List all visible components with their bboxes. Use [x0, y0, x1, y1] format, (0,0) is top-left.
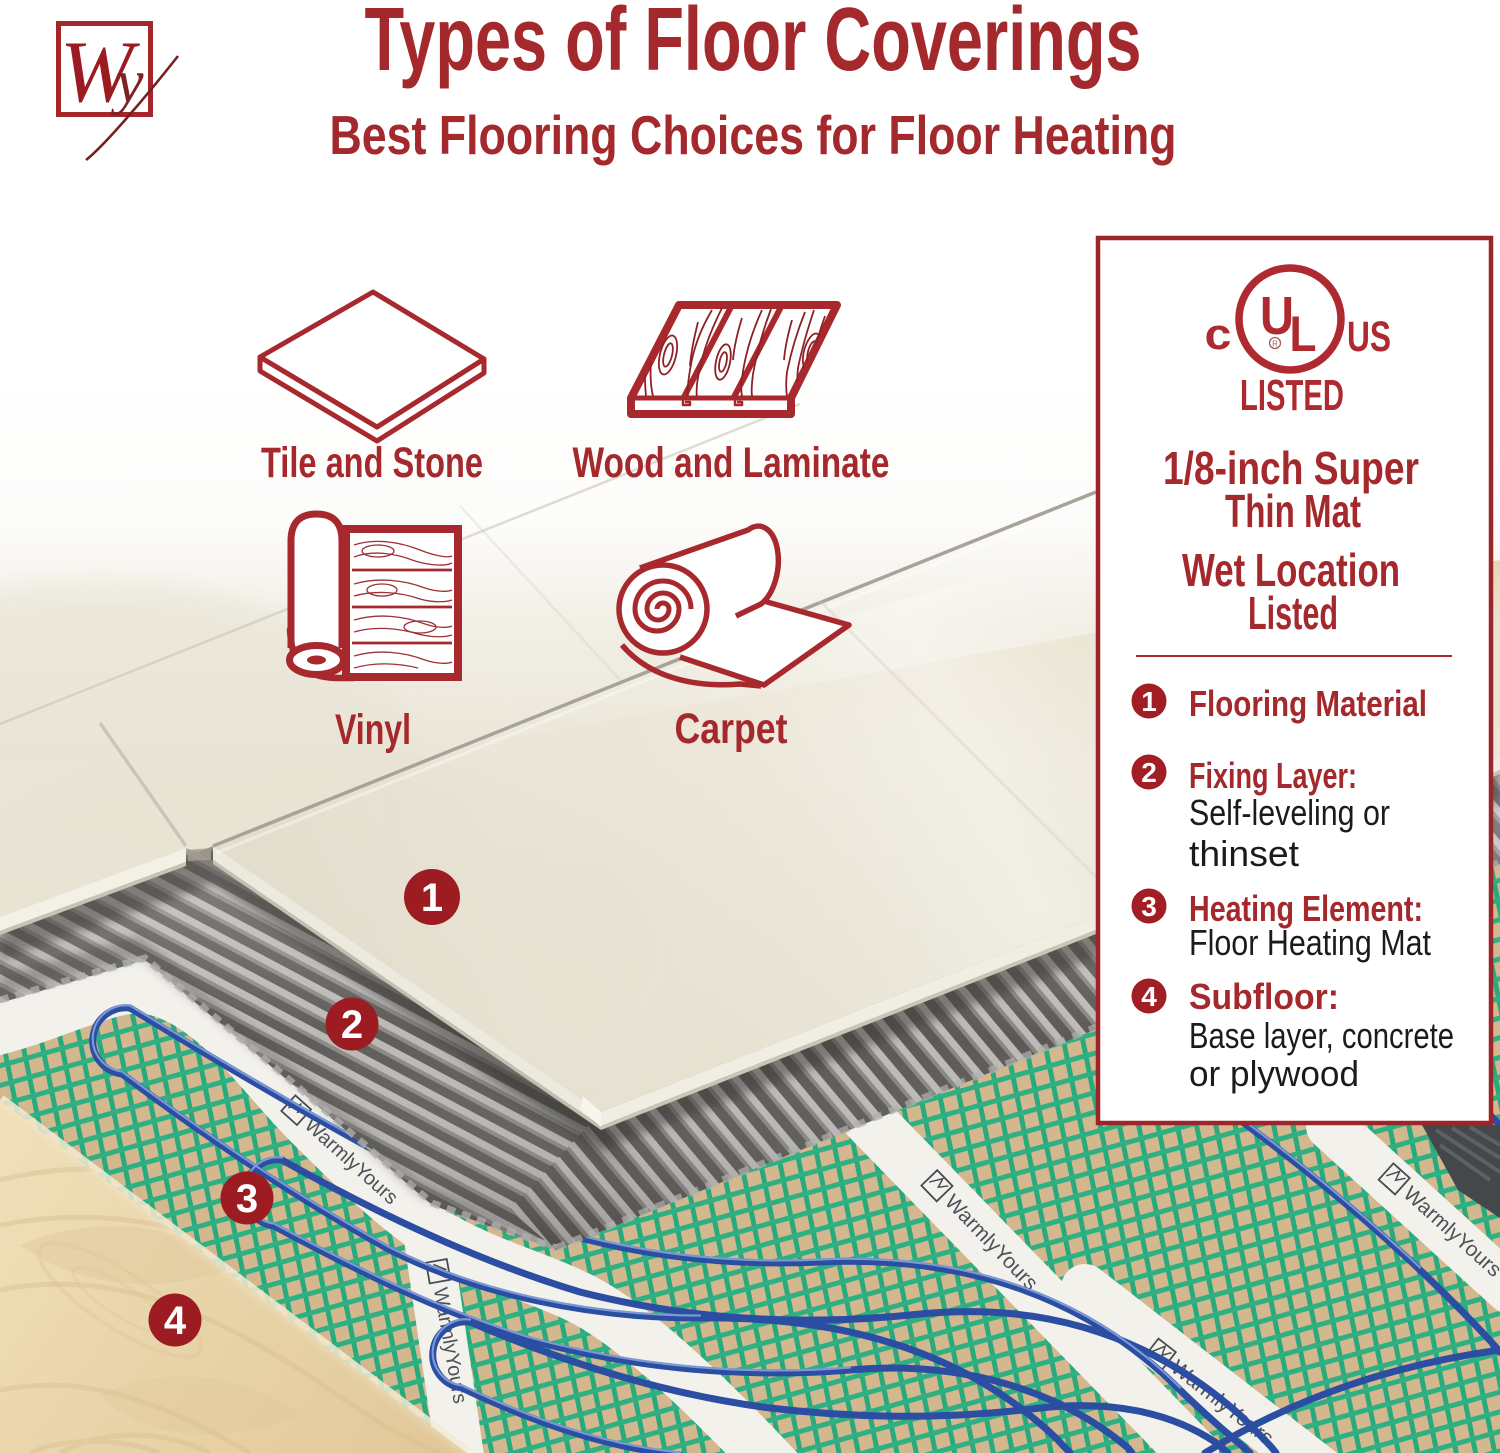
svg-text:1: 1: [421, 876, 443, 920]
svg-text:Base layer, concrete: Base layer, concrete: [1189, 1015, 1454, 1056]
svg-text:Carpet: Carpet: [675, 705, 788, 753]
svg-text:Wood and Laminate: Wood and Laminate: [573, 439, 890, 487]
svg-text:Flooring Material: Flooring Material: [1189, 683, 1427, 724]
svg-text:4: 4: [164, 1299, 187, 1343]
svg-text:Thin Mat: Thin Mat: [1225, 485, 1361, 537]
svg-text:Best Flooring Choices for Floo: Best Flooring Choices for Floor Heating: [330, 104, 1177, 166]
svg-text:Vinyl: Vinyl: [335, 706, 411, 754]
svg-text:thinset: thinset: [1189, 833, 1299, 874]
svg-text:Types of Floor Coverings: Types of Floor Coverings: [365, 0, 1142, 90]
svg-text:c: c: [1205, 310, 1232, 359]
svg-text:Tile and Stone: Tile and Stone: [261, 439, 483, 487]
svg-text:4: 4: [1141, 981, 1157, 1012]
svg-text:US: US: [1347, 313, 1391, 361]
svg-text:L: L: [1290, 306, 1317, 362]
svg-text:1: 1: [1141, 686, 1157, 717]
svg-text:Listed: Listed: [1248, 587, 1338, 639]
svg-text:Subfloor:: Subfloor:: [1189, 976, 1339, 1017]
svg-text:Self-leveling or: Self-leveling or: [1189, 792, 1390, 833]
svg-text:Fixing Layer:: Fixing Layer:: [1189, 755, 1357, 796]
svg-text:Floor Heating Mat: Floor Heating Mat: [1189, 922, 1431, 963]
svg-text:2: 2: [1141, 757, 1157, 788]
svg-text:3: 3: [236, 1177, 258, 1221]
svg-text:LISTED: LISTED: [1240, 371, 1344, 420]
svg-text:3: 3: [1141, 891, 1157, 922]
svg-text:R: R: [1272, 340, 1278, 349]
svg-text:or plywood: or plywood: [1189, 1053, 1359, 1094]
svg-text:2: 2: [341, 1003, 363, 1047]
